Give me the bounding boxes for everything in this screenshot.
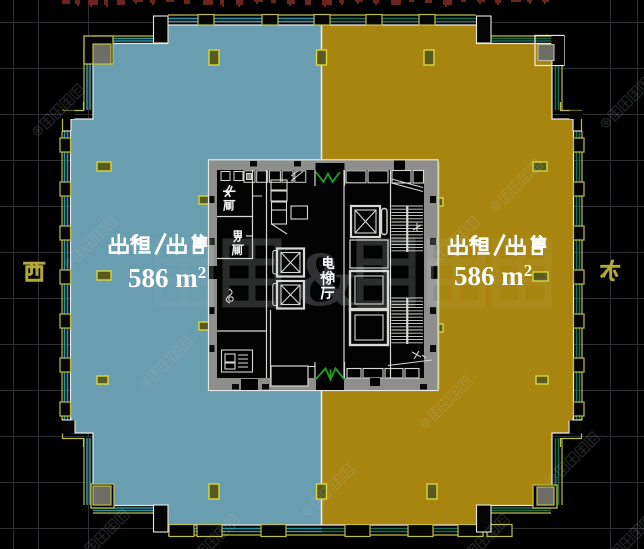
svg-text:&: & — [295, 235, 360, 322]
svg-text:586 m2: 586 m2 — [128, 263, 206, 293]
